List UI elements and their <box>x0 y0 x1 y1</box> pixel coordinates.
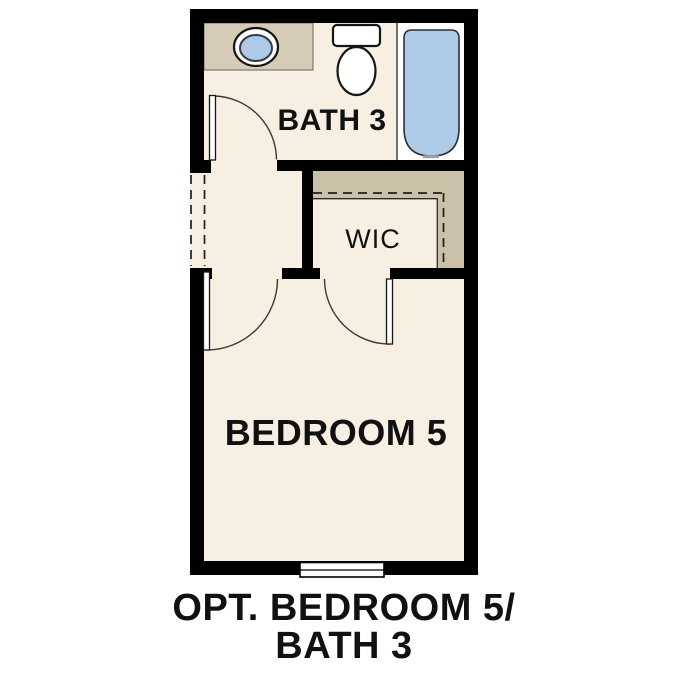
outer-wall-top <box>190 9 478 23</box>
hall-opening-floor <box>190 171 204 268</box>
toilet-tank <box>333 25 380 46</box>
bath-south-wall-right <box>277 160 478 171</box>
room-label-wic: WIC <box>345 224 400 254</box>
outer-wall-right <box>464 9 478 575</box>
floor-plan-svg: BATH 3 WIC BEDROOM 5 OPT. BEDROOM 5/ BAT… <box>0 0 687 687</box>
bath-door-leaf <box>210 96 216 161</box>
bedroom-north-wall-right <box>390 268 478 279</box>
caption-line-2: BATH 3 <box>275 625 412 667</box>
outer-wall-left-upper <box>190 9 204 160</box>
bedroom-north-wall-middle <box>282 268 320 279</box>
caption-line-1: OPT. BEDROOM 5/ <box>172 587 515 629</box>
bathtub <box>404 30 459 156</box>
floor-plan-page: BATH 3 WIC BEDROOM 5 OPT. BEDROOM 5/ BAT… <box>0 0 687 687</box>
room-label-bath: BATH 3 <box>277 104 386 137</box>
bathtub-drain <box>423 155 439 158</box>
sink-basin <box>240 35 272 61</box>
outer-wall-left-lower <box>190 268 204 575</box>
bedroom-window <box>300 563 384 578</box>
room-label-bedroom: BEDROOM 5 <box>225 412 448 453</box>
toilet-bowl <box>338 47 376 95</box>
bedroom-door-leaf <box>204 272 210 350</box>
wic-door-leaf <box>387 279 393 344</box>
bath-south-wall-left-stub <box>190 160 211 173</box>
hall-wic-divider-wall <box>302 171 313 268</box>
